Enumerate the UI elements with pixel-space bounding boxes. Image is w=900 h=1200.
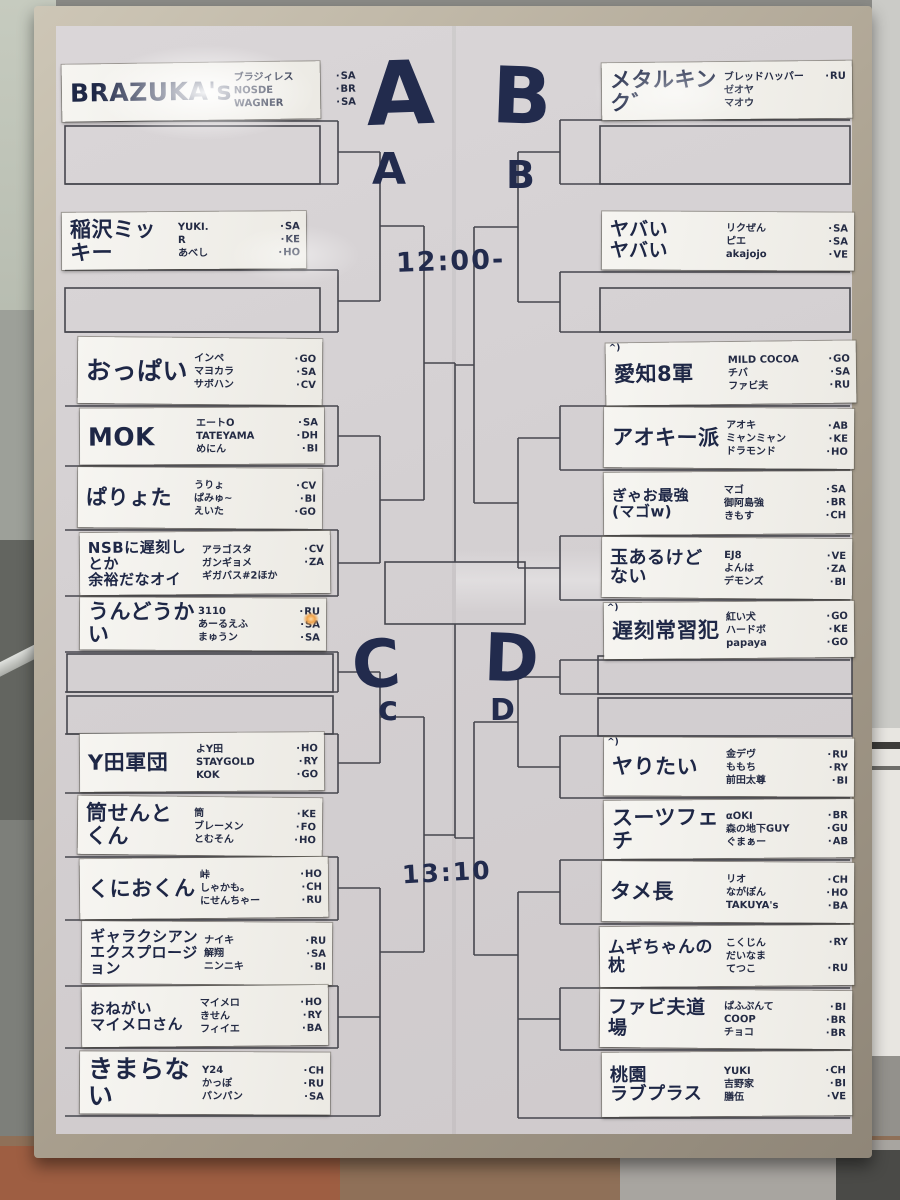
team-strip-chikoku-joshuhan: ^) 遅刻常習犯 紅い犬GO ハードボKE papayaGO	[604, 601, 854, 659]
round-time-top: 12:00-	[395, 244, 505, 279]
team-strip-undokai: うんどうかい 3110RU あーるえふSA まゅうンSA	[80, 597, 326, 650]
glare-spot	[230, 225, 360, 285]
team-name: くにおくん	[80, 875, 200, 903]
team-roster: αOKIBR 森の地下GUYGU ぐまぁーAB	[726, 808, 854, 850]
group-b-small-label: B	[506, 156, 535, 194]
team-name: おっぱい	[78, 354, 194, 386]
team-name: 稲沢ミッキー	[62, 216, 178, 266]
team-name: ムギちゃんの枕	[600, 936, 726, 978]
team-name: ギャラクシアン エクスプロージョン	[82, 926, 204, 979]
team-strip-nsb: NSBに遅刻しとか 余裕だなオイ アラゴスタCV ガンギョメZA ギガバス#2ほ…	[80, 531, 331, 595]
team-name: 玉あるけど ない	[602, 545, 724, 589]
team-roster: Y24CH かっぽRU パンパンSA	[202, 1062, 330, 1104]
team-strip-tama-arukedo-nai: 玉あるけど ない EJ8VE よんはZA デモンズBI	[602, 537, 853, 599]
team-roster: リクぜんSA ピエSA akajojoVE	[726, 220, 854, 262]
team-roster: 紅い犬GO ハードボKE papayaGO	[726, 608, 854, 650]
team-roster: インペGO マヨカラSA サボハンCV	[194, 350, 322, 392]
team-name: Y田軍団	[80, 749, 196, 776]
team-roster: YUKICH 吉野家BI 膳伍VE	[724, 1063, 852, 1105]
team-strip-oppai: おっぱい インペGO マヨカラSA サボハンCV	[78, 337, 323, 405]
team-roster: アオキAB ミャンミャンKE ドラモンドHO	[726, 417, 854, 459]
team-strip-suit-fetish: スーツフェチ αOKIBR 森の地下GUYGU ぐまぁーAB	[604, 799, 854, 859]
team-name: ヤバい ヤバい	[602, 218, 726, 264]
photo-whiteboard-scene: BRAZUKA's ブラジィレスSA NOSDEBR WAGNERSA 稲沢ミッ…	[0, 0, 900, 1200]
team-name: タメ長	[602, 878, 726, 906]
wall-right-top	[872, 0, 900, 728]
team-name: ぱりょた	[78, 484, 194, 511]
team-roster: マイメロHO きせんRY フィイエBA	[200, 994, 328, 1036]
team-strip-yaritai: ^) ヤりたい 金デヴRU ももちRY 前田太尊BI	[604, 737, 854, 796]
team-name: ヤりたい	[604, 753, 726, 780]
team-name: おねがい マイメロさん	[82, 998, 200, 1035]
team-roster: ナイキRU 解翔SA ニンニキBI	[204, 932, 332, 974]
team-name: 愛知8軍	[606, 360, 728, 388]
team-strip-yda-gundan: Y田軍団 よY田HO STAYGOLDRY KOKGO	[80, 732, 324, 792]
team-roster: アラゴスタCV ガンギョメZA ギガバス#2ほか	[202, 541, 330, 583]
group-b-label: B	[491, 57, 553, 137]
team-roster: EJ8VE よんはZA デモンズBI	[724, 547, 852, 589]
team-roster: うりょCV ぱみゅ~BI えいたGO	[194, 477, 322, 519]
team-strip-aichi-8gun: ^) 愛知8軍 MILD COCOAGO チバSA ファビ夫RU	[606, 340, 857, 405]
group-a-small-label: A	[372, 148, 406, 192]
team-strip-mugi-makura: ムギちゃんの枕 こくじんRY だいなま てつこRU	[600, 925, 855, 987]
stair-rail-line	[872, 766, 900, 770]
orange-glint	[303, 612, 319, 626]
team-strip-mymelo: おねがい マイメロさん マイメロHO きせんRY フィイエBA	[82, 985, 329, 1047]
team-roster: こくじんRY だいなま てつこRU	[726, 934, 854, 976]
team-name: アオキー派	[604, 424, 726, 452]
team-strip-mok: MOK エートOSA TATEYAMADH めにんBI	[80, 407, 324, 464]
team-strip-tamecho: タメ長 リオCH ながぽんHO TAKUYA'sBA	[602, 861, 854, 923]
team-roster: よY田HO STAYGOLDRY KOKGO	[196, 741, 324, 783]
stair-rail-line	[872, 742, 900, 749]
round-time-bottom: 13:10	[401, 856, 492, 890]
corner-mark: ^)	[607, 603, 619, 613]
team-roster: 金デヴRU ももちRY 前田太尊BI	[726, 746, 854, 788]
team-name: 桃園 ラブプラス	[602, 1063, 724, 1107]
team-roster: リオCH ながぽんHO TAKUYA'sBA	[726, 871, 854, 913]
team-name: ファビ夫道場	[600, 995, 724, 1041]
team-strip-fabio-dojo: ファビ夫道場 ぱふぷんてBI COOPBR チョコBR	[600, 989, 852, 1049]
team-strip-tsutsusentokun: 筒せんとくん 筒KE ブレーメンFO とむそんHO	[78, 796, 323, 857]
corner-mark: ^)	[607, 737, 619, 747]
team-strip-kimaranai: きまらない Y24CH かっぽRU パンパンSA	[80, 1051, 330, 1114]
team-roster: 峠HO しゃかも。CH にせんちゃーRU	[200, 866, 328, 908]
corner-mark: ^)	[609, 343, 621, 353]
group-a-label: A	[364, 49, 435, 139]
team-strip-momozono-loveplus: 桃園 ラブプラス YUKICH 吉野家BI 膳伍VE	[602, 1051, 852, 1117]
team-name: きまらない	[80, 1053, 202, 1112]
team-name: MOK	[80, 421, 196, 453]
group-d-small-label: D	[490, 696, 515, 726]
team-strip-aoki-ha: アオキー派 アオキAB ミャンミャンKE ドラモンドHO	[604, 407, 854, 469]
group-d-label: D	[483, 625, 540, 693]
team-roster: マゴSA 御阿島強BR きもすCH	[724, 482, 852, 524]
team-strip-kuniokun: くにおくん 峠HO しゃかも。CH にせんちゃーRU	[80, 857, 329, 920]
team-roster: 筒KE ブレーメンFO とむそんHO	[194, 805, 322, 847]
group-c-small-label: c	[378, 692, 398, 726]
team-name: 遅刻常習犯	[604, 617, 726, 645]
team-name: NSBに遅刻しとか 余裕だなオイ	[80, 537, 202, 591]
team-roster: ぱふぷんてBI COOPBR チョコBR	[724, 998, 852, 1040]
team-strip-yabai-yabai: ヤバい ヤバい リクぜんSA ピエSA akajojoVE	[602, 211, 854, 270]
glare-spot	[95, 45, 315, 140]
team-strip-paryota: ぱりょた うりょCV ぱみゅ~BI えいたGO	[78, 467, 322, 529]
stair-step-shadow	[872, 1056, 900, 1136]
team-roster: エートOSA TATEYAMADH めにんBI	[196, 415, 324, 457]
team-strip-galaxian: ギャラクシアン エクスプロージョン ナイキRU 解翔SA ニンニキBI	[82, 921, 332, 985]
team-roster: MILD COCOAGO チバSA ファビ夫RU	[728, 351, 856, 394]
team-name: スーツフェチ	[604, 804, 726, 854]
glare-spot	[590, 58, 760, 128]
team-name: うんどうかい	[80, 599, 198, 649]
team-name: 筒せんとくん	[78, 800, 195, 851]
team-name: ぎゃお最強 (マゴw)	[604, 485, 724, 522]
team-strip-gyao-saikyo: ぎゃお最強 (マゴw) マゴSA 御阿島強BR きもすCH	[604, 471, 852, 535]
